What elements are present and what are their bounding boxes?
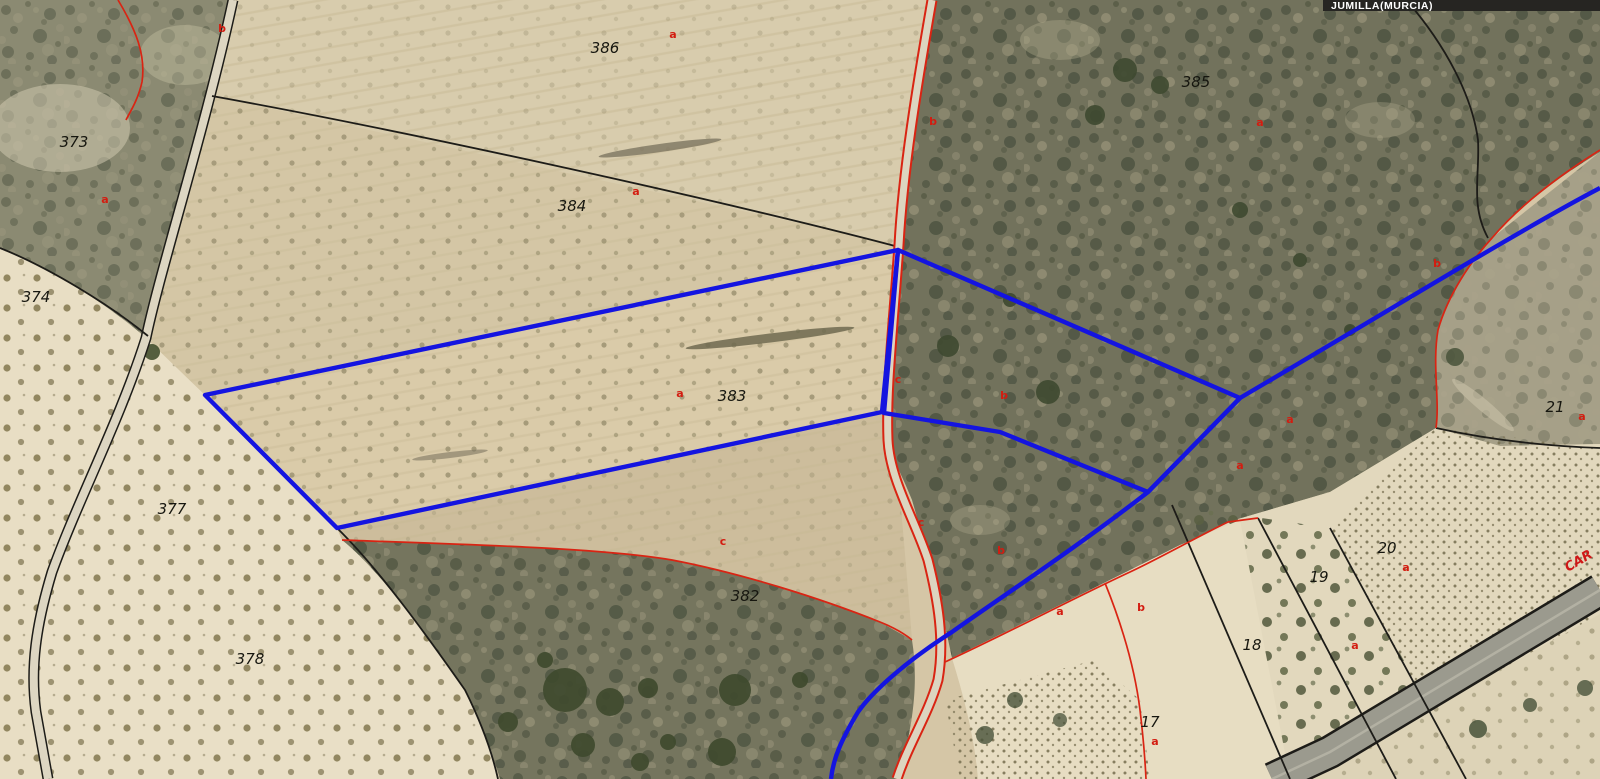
subparcel-letter: a <box>632 185 639 198</box>
subparcel-letter: a <box>676 387 683 400</box>
parcel-label-378: 378 <box>236 650 265 668</box>
map-canvas[interactable]: 386 373 374 384 385 383 377 382 378 21 2… <box>0 0 1600 779</box>
subparcel-letter: a <box>1286 413 1293 426</box>
subparcel-letter: c <box>895 373 902 386</box>
parcel-label-18: 18 <box>1242 636 1261 654</box>
subparcel-letter: b <box>997 544 1005 557</box>
parcel-label-377: 377 <box>158 500 187 518</box>
subparcel-letter: c <box>918 516 925 529</box>
subparcel-letter: b <box>218 22 226 35</box>
parcel-label-21: 21 <box>1545 398 1564 416</box>
parcel-label-384: 384 <box>558 197 587 215</box>
location-label-text: JUMILLA(MURCIA) <box>1331 0 1433 12</box>
parcel-label-374: 374 <box>22 288 51 306</box>
subparcel-letter: a <box>1151 735 1158 748</box>
subparcel-letter: a <box>1256 116 1263 129</box>
parcel-label-385: 385 <box>1182 73 1211 91</box>
location-label: JUMILLA(MURCIA) <box>1323 0 1600 12</box>
subparcel-letter: b <box>1137 601 1145 614</box>
subparcel-letter: a <box>1351 639 1358 652</box>
subparcel-letter: a <box>1578 410 1585 423</box>
parcel-label-20: 20 <box>1377 539 1396 557</box>
parcel-label-19: 19 <box>1309 568 1328 586</box>
subparcel-letter: a <box>1236 459 1243 472</box>
parcel-label-386: 386 <box>591 39 620 57</box>
subparcel-letter: b <box>929 115 937 128</box>
parcel-label-373: 373 <box>60 133 89 151</box>
map-viewport[interactable]: 386 373 374 384 385 383 377 382 378 21 2… <box>0 0 1600 779</box>
parcel-label-17: 17 <box>1140 713 1160 731</box>
subparcel-letter: a <box>1402 561 1409 574</box>
subparcel-letter: b <box>1000 389 1008 402</box>
subparcel-letter: a <box>669 28 676 41</box>
subparcel-letter: b <box>1433 257 1441 270</box>
parcel-label-383: 383 <box>718 387 747 405</box>
subparcel-letter: c <box>720 535 727 548</box>
subparcel-letter: a <box>101 193 108 206</box>
parcel-label-382: 382 <box>731 587 760 605</box>
subparcel-letter: a <box>1056 605 1063 618</box>
